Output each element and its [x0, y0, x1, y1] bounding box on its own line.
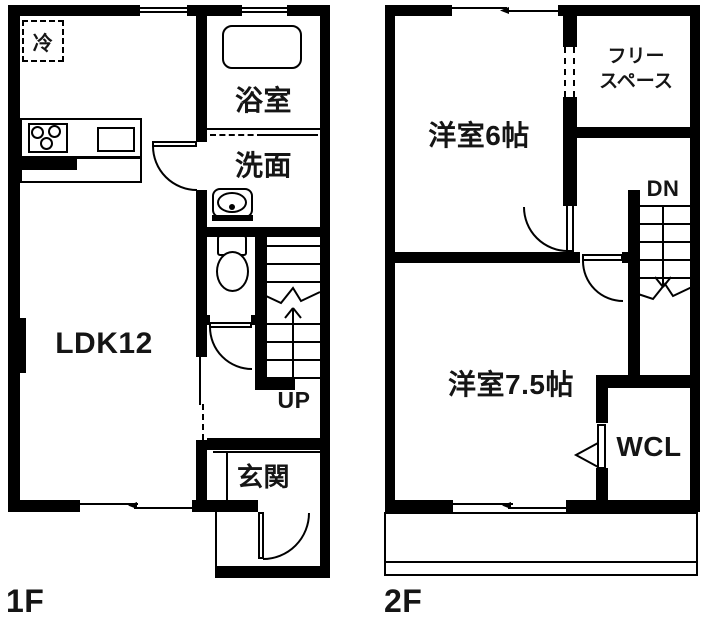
- stove-burner: [48, 125, 61, 138]
- wall-segment: [596, 375, 700, 388]
- entrance-step-line: [213, 451, 320, 453]
- stair-down-arrow-icon: [651, 203, 675, 295]
- room-label-wcl: WCL: [606, 430, 692, 464]
- door-swing-arc: [209, 326, 253, 370]
- room-label-room6: 洋室6帖: [399, 118, 559, 150]
- balcony-outline: [384, 512, 698, 576]
- wall-segment: [196, 440, 207, 502]
- sliding-door-panel: [199, 357, 201, 405]
- stair-tread: [267, 281, 320, 283]
- window-slide-arrow-icon: [500, 501, 512, 510]
- entrance-step-line: [226, 453, 228, 502]
- stair-tread: [267, 263, 320, 265]
- bath-partition-line: [263, 134, 318, 136]
- window-pane-line: [140, 11, 187, 13]
- stair-tread: [267, 245, 320, 247]
- refrigerator-label: 冷: [22, 20, 64, 62]
- wall-segment: [196, 502, 258, 512]
- floor1-label: 1F: [6, 584, 76, 618]
- window-slide-arrow-icon: [498, 6, 510, 15]
- wall-segment: [255, 230, 267, 390]
- wall-segment: [215, 566, 330, 578]
- wall-segment: [196, 315, 210, 325]
- wall-segment: [563, 16, 577, 47]
- bath-sliding-door: [210, 134, 263, 136]
- door-swing-arc: [152, 145, 198, 191]
- room-label-bath: 浴室: [207, 83, 320, 115]
- balcony-rail-line: [384, 561, 698, 563]
- stair-break-zigzag: [266, 284, 320, 304]
- wall-segment: [385, 252, 580, 263]
- window-pane-line: [242, 7, 287, 9]
- window-pane-line: [242, 11, 287, 13]
- kitchen-sink: [97, 127, 135, 152]
- floor2-label: 2F: [384, 584, 454, 618]
- toilet-bowl: [216, 251, 249, 292]
- stove-burner: [40, 137, 53, 150]
- porch-edge-line: [215, 512, 217, 568]
- washbasin-drain: [229, 204, 235, 210]
- wall-segment: [196, 190, 207, 357]
- bath-partition-line: [207, 128, 320, 130]
- stairs-up-label: UP: [271, 388, 317, 412]
- stair-up-arrow-icon: [281, 304, 305, 384]
- room-label-free-space: フリー スペース: [578, 44, 694, 94]
- wall-segment: [8, 5, 20, 512]
- free-space-line1: フリー: [578, 44, 694, 69]
- kitchen-counter-block: [20, 157, 77, 170]
- free-space-line2: スペース: [578, 69, 694, 94]
- window-pane-line: [505, 10, 558, 12]
- wall-segment: [196, 16, 207, 142]
- door-swing-arc: [523, 206, 569, 252]
- room-label-ldk: LDK12: [38, 328, 170, 360]
- window-pane-line: [140, 7, 187, 9]
- open-wall-dashed: [573, 47, 575, 97]
- folding-door-icon: [572, 441, 600, 469]
- bathtub: [222, 25, 302, 69]
- wall-segment: [251, 315, 267, 325]
- wall-segment: [563, 97, 577, 206]
- stairs-down-label: DN: [638, 178, 688, 200]
- window-pane-line: [134, 507, 192, 509]
- entrance-door-swing-arc: [262, 512, 310, 560]
- door-swing-arc: [582, 260, 624, 302]
- floorplan-canvas: 冷 LDK12 浴室 洗面 UP 玄関 1F: [0, 0, 712, 629]
- wall-segment: [596, 468, 608, 502]
- window-slide-arrow-icon: [126, 501, 138, 510]
- wall-segment: [320, 5, 330, 578]
- sliding-door-track: [202, 404, 204, 440]
- wall-segment: [563, 127, 700, 138]
- wall-segment: [207, 438, 320, 450]
- open-wall-dashed: [564, 47, 566, 97]
- room-label-wash: 洗面: [207, 148, 320, 180]
- wall-segment: [18, 318, 26, 373]
- washbasin-base: [212, 215, 253, 221]
- room-label-entrance: 玄関: [207, 461, 320, 489]
- window-pane-line: [508, 507, 566, 509]
- room-label-room75: 洋室7.5帖: [426, 366, 596, 400]
- wall-segment: [596, 388, 608, 423]
